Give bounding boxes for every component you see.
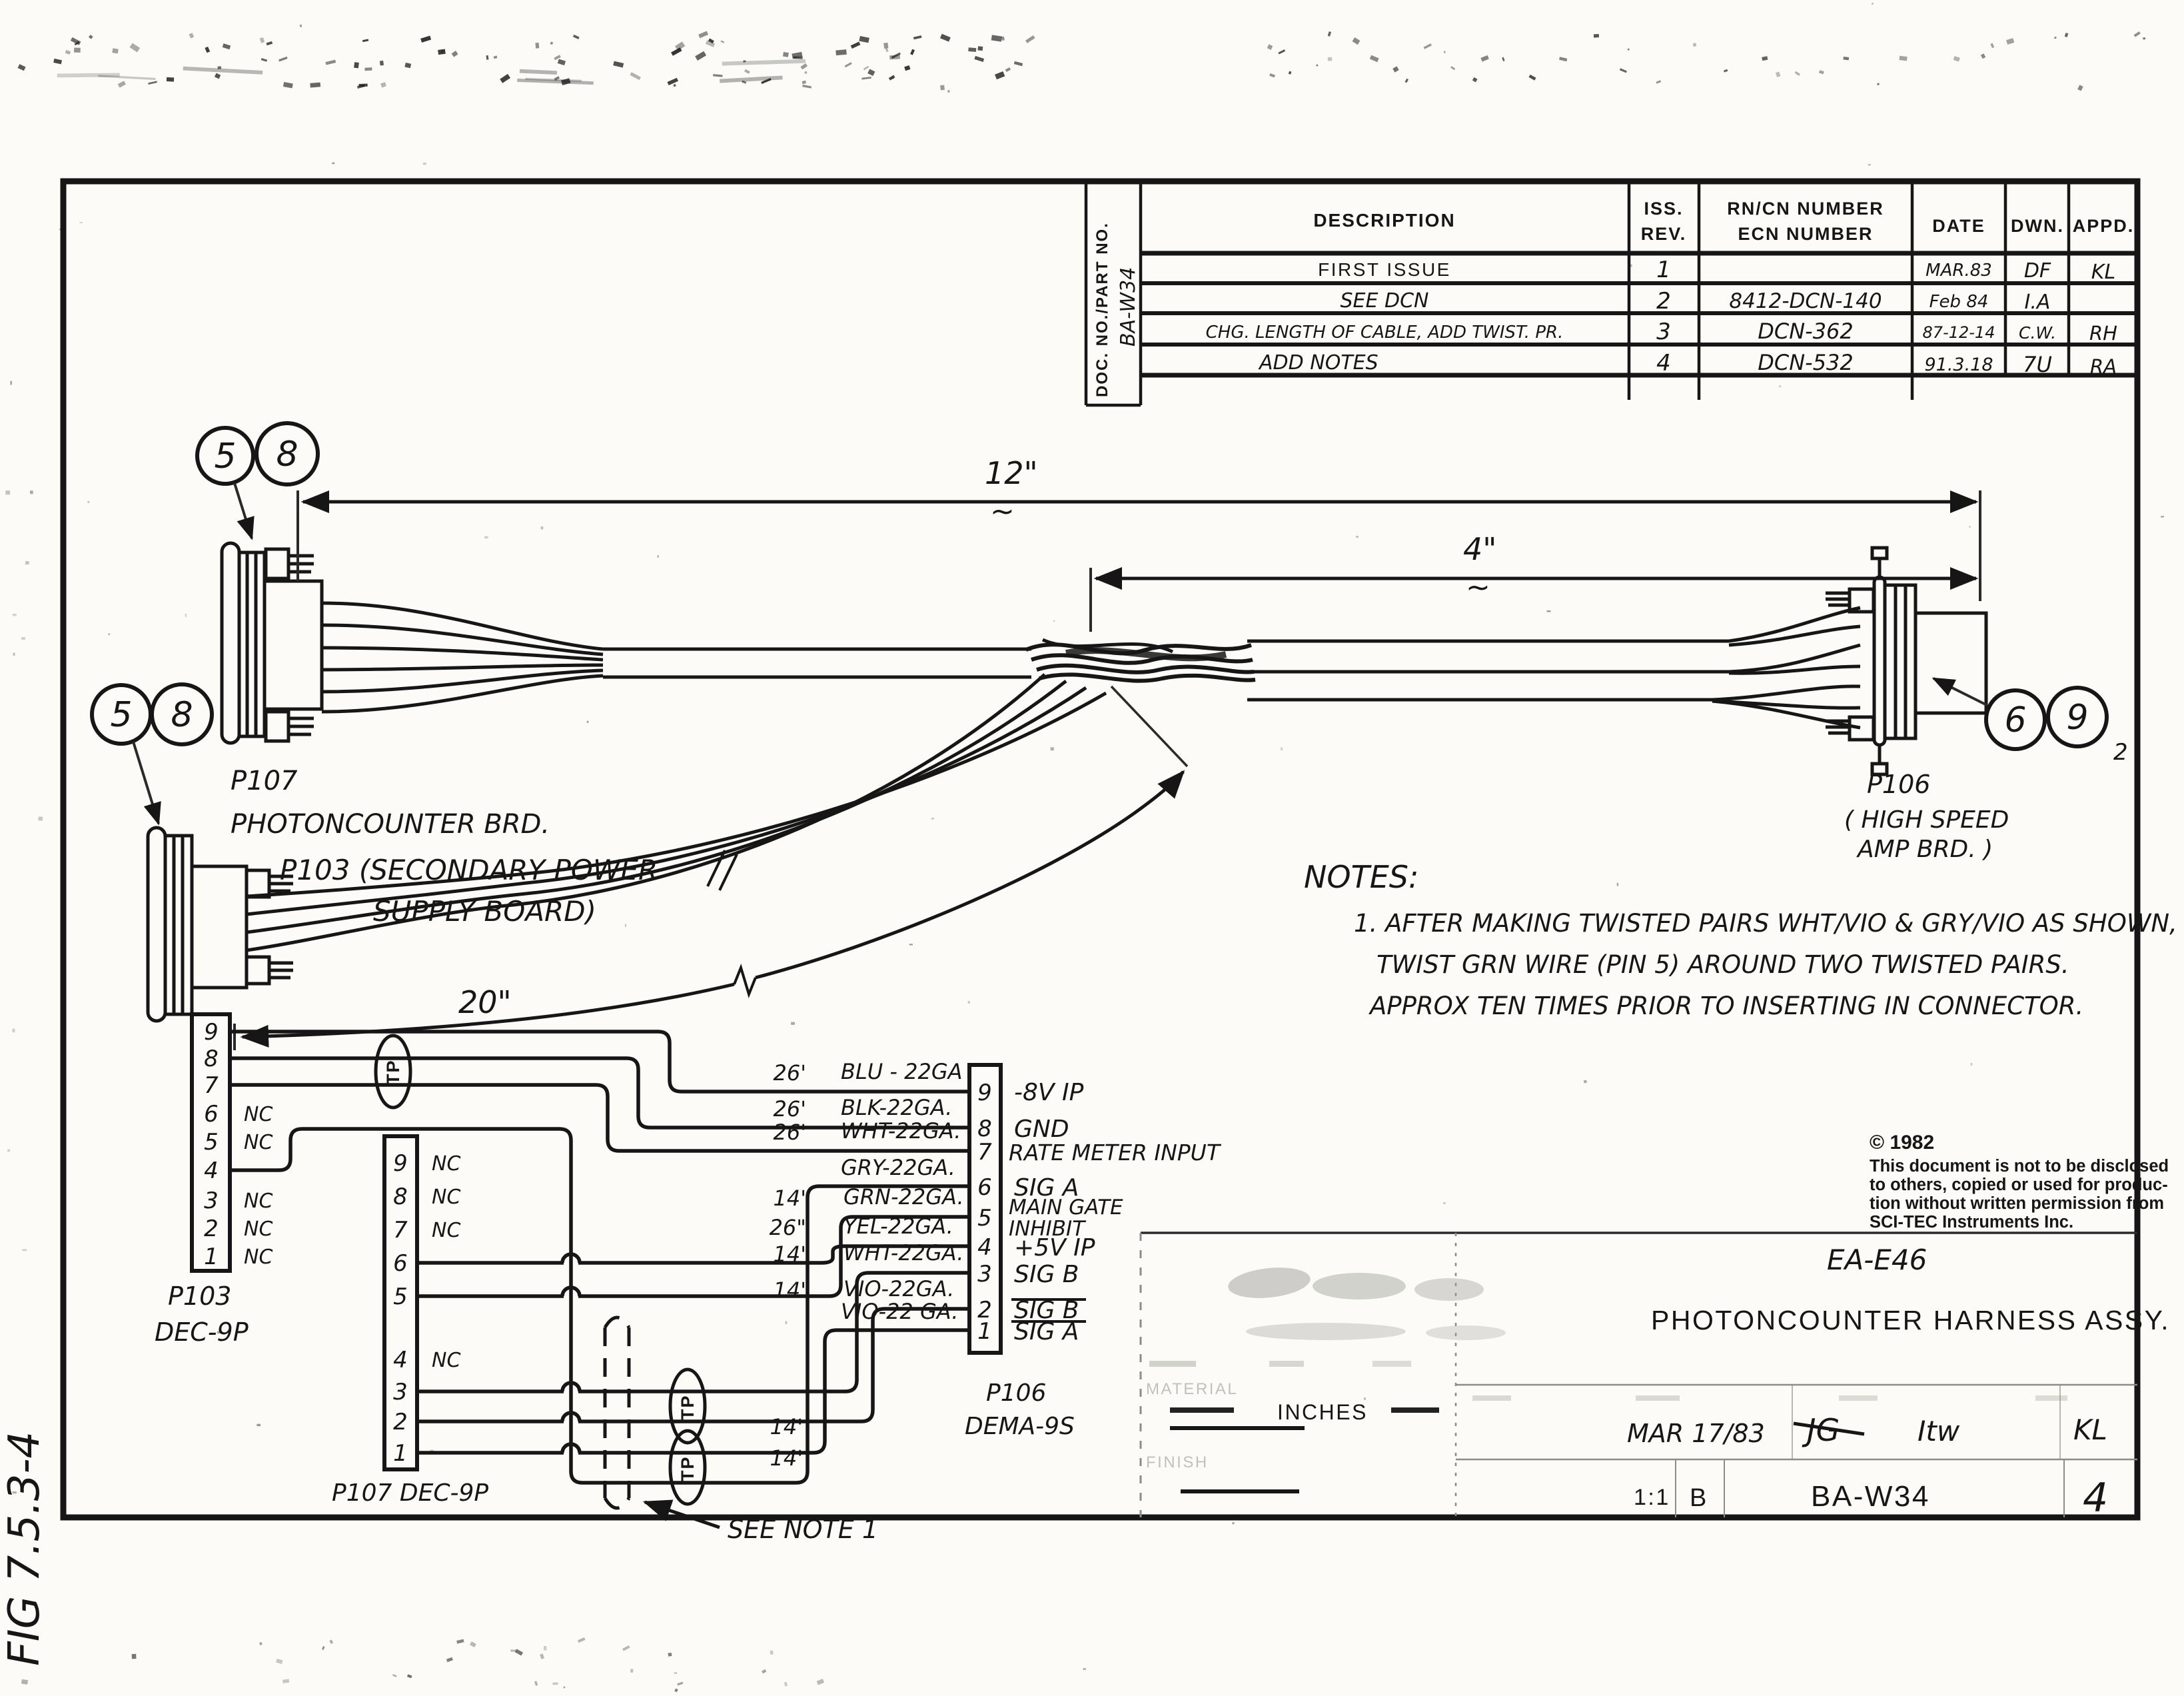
svg-text:26": 26" (770, 1215, 806, 1240)
rev1-appd: KL (2091, 261, 2115, 284)
sheet-number: 4 (2083, 1475, 2108, 1521)
balloon-8-p107: 8 (257, 423, 318, 484)
svg-text:BLU - 22GA: BLU - 22GA (841, 1059, 963, 1084)
svg-text:7: 7 (977, 1139, 992, 1166)
p103-screw-bottom (247, 957, 269, 984)
svg-text:to others, copied or used for: to others, copied or used for produc- (1870, 1176, 2168, 1194)
rev4-rev: 4 (1656, 350, 1671, 377)
svg-text:6: 6 (2004, 700, 2026, 740)
p106-pin-box-label2: DEMA-9S (965, 1413, 1075, 1440)
col-dwn: DWN. (2011, 216, 2064, 236)
rev4-dwn: 7U (2023, 352, 2052, 377)
svg-text:VIO-22GA.: VIO-22GA. (843, 1276, 954, 1301)
svg-text:NC: NC (244, 1103, 273, 1126)
rev1-date: MAR.83 (1925, 261, 1992, 281)
svg-text:8: 8 (204, 1046, 219, 1072)
revision-row-1: FIRST ISSUE 1 MAR.83 DF KL (1318, 257, 2115, 284)
svg-text:1: 1 (204, 1244, 219, 1270)
units-blank-line (1391, 1407, 1439, 1413)
p103-pin-box-label1: P103 (168, 1281, 231, 1311)
svg-text:14': 14' (773, 1242, 806, 1267)
dim-12-label: 12" (985, 455, 1038, 491)
svg-text:TP: TP (678, 1455, 698, 1481)
title-block: INCHES MATERIAL FINISH EA-E46 PHOTONCOUN… (1141, 1233, 2170, 1521)
scale-blank-line (1170, 1407, 1234, 1413)
svg-text:5: 5 (110, 695, 132, 735)
junction-extension-line (1111, 686, 1187, 766)
tp-marker-top: TP (376, 1036, 410, 1108)
svg-text:~: ~ (990, 494, 1015, 528)
dim-4-label: 4" (1463, 531, 1496, 567)
svg-text:8: 8 (171, 695, 193, 735)
svg-text:9: 9 (204, 1019, 219, 1046)
svg-text:8: 8 (276, 434, 298, 474)
see-note-label: SEE NOTE 1 (728, 1515, 878, 1544)
p107-screw-top (266, 549, 288, 578)
balloon-9-subscript: 2 (2113, 739, 2128, 766)
notes-line2: TWIST GRN WIRE (PIN 5) AROUND TWO TWISTE… (1376, 950, 2069, 979)
signal-gnd: GND (1014, 1116, 1069, 1143)
svg-text:SCI-TEC Instruments Inc.: SCI-TEC Instruments Inc. (1870, 1213, 2073, 1232)
docno-value: BA-W34 (1811, 1480, 1930, 1513)
ref-number: EA-E46 (1827, 1244, 1927, 1276)
titleblock-header-smudges (1472, 1395, 2067, 1401)
units-label: INCHES (1277, 1400, 1368, 1424)
svg-text:1: 1 (393, 1440, 408, 1467)
p107-pin-box-label: P107 DEC-9P (332, 1479, 488, 1507)
svg-text:NC: NC (244, 1218, 273, 1241)
svg-text:GRN-22GA.: GRN-22GA. (843, 1184, 964, 1210)
revision-table: DOC. NO./PART NO. BA-W34 DESCRIPTION ISS… (1086, 181, 2137, 405)
rev2-rev: 2 (1656, 288, 1671, 315)
col-description: DESCRIPTION (1313, 210, 1455, 231)
p106-pin-numbers: 98 76 54 32 1 (977, 1080, 992, 1345)
p106-pin-box-label1: P106 (986, 1379, 1046, 1407)
signal-neg8v: -8V IP (1014, 1079, 1084, 1106)
p106-signals: -8V IP GND RATE METER INPUT SIG A MAIN G… (1009, 1079, 1222, 1345)
col-appd: APPD. (2073, 216, 2135, 236)
copyright-year: © 1982 (1870, 1132, 1934, 1154)
rev4-appd: RA (2090, 355, 2117, 378)
svg-text:NC: NC (432, 1152, 460, 1176)
rev3-date: 87-12-14 (1923, 323, 1995, 342)
size-value: B (1690, 1484, 1708, 1512)
balloon-8-p103: 8 (152, 684, 212, 744)
balloon-6-p106: 6 (1986, 690, 2045, 749)
svg-text:TP: TP (678, 1394, 698, 1420)
svg-text:4: 4 (204, 1158, 219, 1184)
dim-4in: 4" ~ (1091, 531, 1976, 632)
scanned-drawing-page: DOC. NO./PART NO. BA-W34 DESCRIPTION ISS… (0, 0, 2184, 1696)
svg-text:14': 14' (773, 1277, 806, 1303)
p103-desc-line2: SUPPLY BOARD) (373, 895, 596, 928)
material-label: MATERIAL (1146, 1380, 1238, 1398)
balloon-5-p103: 5 (92, 685, 151, 744)
len-14-siga-vio: 14' (770, 1414, 803, 1439)
svg-text:3: 3 (204, 1188, 219, 1214)
scale-value: 1:1 (1634, 1485, 1670, 1510)
svg-text:6: 6 (204, 1101, 219, 1128)
col-ecn: ECN NUMBER (1738, 224, 1873, 244)
svg-text:WHT-22GA.: WHT-22GA. (841, 1118, 961, 1144)
p106-screw-bottom (1850, 717, 1874, 740)
wire-labels: 26'BLU - 22GA 26'BLK-22GA. 26'WHT-22GA. … (770, 1059, 964, 1471)
figure-label: FIG 7.5.3-4 (0, 1431, 49, 1666)
p107-screw-bottom (266, 712, 288, 741)
drawing-canvas: DOC. NO./PART NO. BA-W34 DESCRIPTION ISS… (0, 0, 2184, 1696)
twist-bundle-dashed (605, 1317, 629, 1508)
svg-text:TP: TP (383, 1059, 403, 1085)
rev3-rev: 3 (1656, 319, 1671, 345)
rev3-dwn: C.W. (2019, 323, 2056, 343)
p103-desc-line1: P103 (SECONDARY POWER (280, 854, 658, 886)
p103-nc-labels: NCNC NCNC NC (244, 1103, 273, 1269)
svg-text:5: 5 (214, 436, 236, 476)
svg-text:4: 4 (977, 1234, 992, 1261)
rev4-number: DCN-532 (1758, 350, 1854, 375)
svg-text:6: 6 (393, 1250, 408, 1277)
svg-text:2: 2 (393, 1409, 408, 1435)
balloon-5-p107: 5 (197, 428, 253, 484)
rev1-dwn: DF (2024, 259, 2051, 283)
signal-rate-meter: RATE METER INPUT (1009, 1140, 1222, 1166)
svg-text:26': 26' (773, 1096, 806, 1122)
notes-block: NOTES: 1. AFTER MAKING TWISTED PAIRS WHT… (1304, 859, 2177, 1020)
svg-text:26': 26' (773, 1060, 806, 1086)
svg-text:8: 8 (393, 1184, 408, 1210)
titleblock-date: MAR 17/83 (1627, 1419, 1765, 1448)
col-date: DATE (1932, 216, 1985, 236)
revision-row-2: SEE DCN 2 8412-DCN-140 Feb 84 I.A (1341, 288, 2051, 315)
svg-text:~: ~ (1466, 570, 1490, 604)
svg-text:5: 5 (977, 1205, 992, 1232)
rev3-number: DCN-362 (1758, 319, 1854, 344)
len-14-siga-gry: 14' (770, 1445, 803, 1471)
drawing-title: PHOTONCOUNTER HARNESS ASSY. (1651, 1305, 2170, 1335)
svg-text:WHT-22GA.: WHT-22GA. (843, 1240, 963, 1266)
notes-heading: NOTES: (1304, 859, 1418, 895)
p103-connector (148, 828, 293, 1021)
svg-text:3: 3 (393, 1379, 408, 1405)
svg-text:7: 7 (393, 1217, 408, 1244)
svg-text:GRY-22GA.: GRY-22GA. (841, 1155, 955, 1180)
svg-text:8: 8 (977, 1116, 992, 1142)
rev2-date: Feb 84 (1929, 292, 1989, 312)
rev1-description: FIRST ISSUE (1318, 259, 1451, 280)
svg-text:5: 5 (204, 1129, 219, 1156)
balloon-9-p106: 9 2 (2048, 688, 2128, 766)
p106-desc-line2: AMP BRD. ) (1856, 836, 1993, 863)
svg-text:BLK-22GA.: BLK-22GA. (841, 1095, 952, 1120)
rev3-description: CHG. LENGTH OF CABLE, ADD TWIST. PR. (1206, 323, 1564, 343)
finish-label: FINISH (1146, 1453, 1209, 1471)
balloon-leader-p103 (133, 742, 159, 824)
svg-text:NC: NC (432, 1349, 460, 1372)
col-rncn: RN/CN NUMBER (1727, 199, 1884, 219)
rev3-appd: RH (2089, 322, 2117, 345)
revision-table-header: DESCRIPTION ISS. REV. RN/CN NUMBER ECN N… (1313, 199, 2134, 244)
col-iss: ISS. (1644, 199, 1683, 219)
rev4-description: ADD NOTES (1258, 351, 1378, 375)
svg-text:9: 9 (393, 1150, 408, 1177)
pin-wiring-diagram: 98 76 54 32 1 NCNC NCNC NC P103 DEC-9P 9… (155, 1014, 1222, 1544)
p107-desc-label: PHOTONCOUNTER BRD. (231, 809, 550, 840)
col-rev: REV. (1641, 224, 1687, 244)
notes-line3: APPROX TEN TIMES PRIOR TO INSERTING IN C… (1368, 992, 2083, 1020)
svg-text:YEL-22GA.: YEL-22GA. (843, 1214, 953, 1239)
rev2-dwn: I.A (2025, 291, 2051, 314)
svg-text:3: 3 (977, 1261, 992, 1287)
dim-20-label: 20" (458, 984, 512, 1020)
p107-name-label: P107 (231, 766, 298, 796)
svg-text:14': 14' (773, 1186, 806, 1211)
balloon-leader-p107 (235, 483, 252, 538)
p107-pin-numbers: 98 76 54 32 1 (393, 1150, 408, 1467)
copyright-block: © 1982 This document is not to be disclo… (1870, 1132, 2169, 1232)
rev4-date: 91.3.18 (1924, 355, 1993, 375)
svg-text:NC: NC (432, 1219, 460, 1242)
svg-text:tion without written permissio: tion without written permission from (1870, 1194, 2164, 1213)
svg-text:5: 5 (393, 1283, 408, 1310)
rev2-number: 8412-DCN-140 (1729, 289, 1882, 313)
svg-text:7: 7 (204, 1072, 219, 1099)
signal-5v: +5V IP (1014, 1234, 1095, 1262)
cable-junction-knot (1026, 640, 1255, 681)
p103-screw-top (247, 870, 269, 897)
svg-text:VIO-22 GA.: VIO-22 GA. (841, 1299, 958, 1324)
logo-smudge (1149, 1264, 1506, 1367)
svg-text:4: 4 (393, 1347, 408, 1373)
svg-text:This document is not to be dis: This document is not to be disclosed (1870, 1157, 2169, 1176)
svg-text:6: 6 (977, 1174, 992, 1201)
rev2-description: SEE DCN (1341, 289, 1429, 313)
signature-checked: Itw (1917, 1415, 1960, 1447)
signal-main-gate: MAIN GATE (1009, 1196, 1123, 1220)
p106-name-label: P106 (1867, 770, 1930, 799)
svg-text:NC: NC (244, 1131, 273, 1154)
svg-text:26': 26' (773, 1120, 806, 1145)
revision-row-3: CHG. LENGTH OF CABLE, ADD TWIST. PR. 3 D… (1206, 319, 2118, 345)
p103-pin-box-label2: DEC-9P (155, 1317, 249, 1347)
svg-text:NC: NC (432, 1186, 460, 1209)
svg-text:NC: NC (244, 1190, 273, 1213)
signature-approved: KL (2073, 1413, 2107, 1446)
signal-sigb: SIG B (1014, 1261, 1079, 1288)
notes-line1: 1. AFTER MAKING TWISTED PAIRS WHT/VIO & … (1354, 909, 2177, 938)
signature-drawn: JG (1794, 1412, 1864, 1448)
p106-desc-line1: ( HIGH SPEED (1844, 806, 2009, 834)
p103-pin-numbers: 98 76 54 32 1 (204, 1019, 219, 1270)
rev1-rev: 1 (1656, 257, 1671, 283)
svg-text:NC: NC (244, 1246, 273, 1269)
svg-text:9: 9 (2066, 698, 2088, 738)
p106-connector (1826, 548, 1986, 774)
balloon-leader-p106 (1933, 678, 1987, 705)
svg-text:9: 9 (977, 1080, 992, 1106)
doc-no-strip-value: BA-W34 (1117, 267, 1140, 347)
svg-text:1: 1 (977, 1318, 992, 1345)
doc-no-strip-label: DOC. NO./PART NO. (1093, 222, 1111, 397)
p107-connector (222, 543, 322, 743)
svg-text:2: 2 (204, 1216, 219, 1242)
